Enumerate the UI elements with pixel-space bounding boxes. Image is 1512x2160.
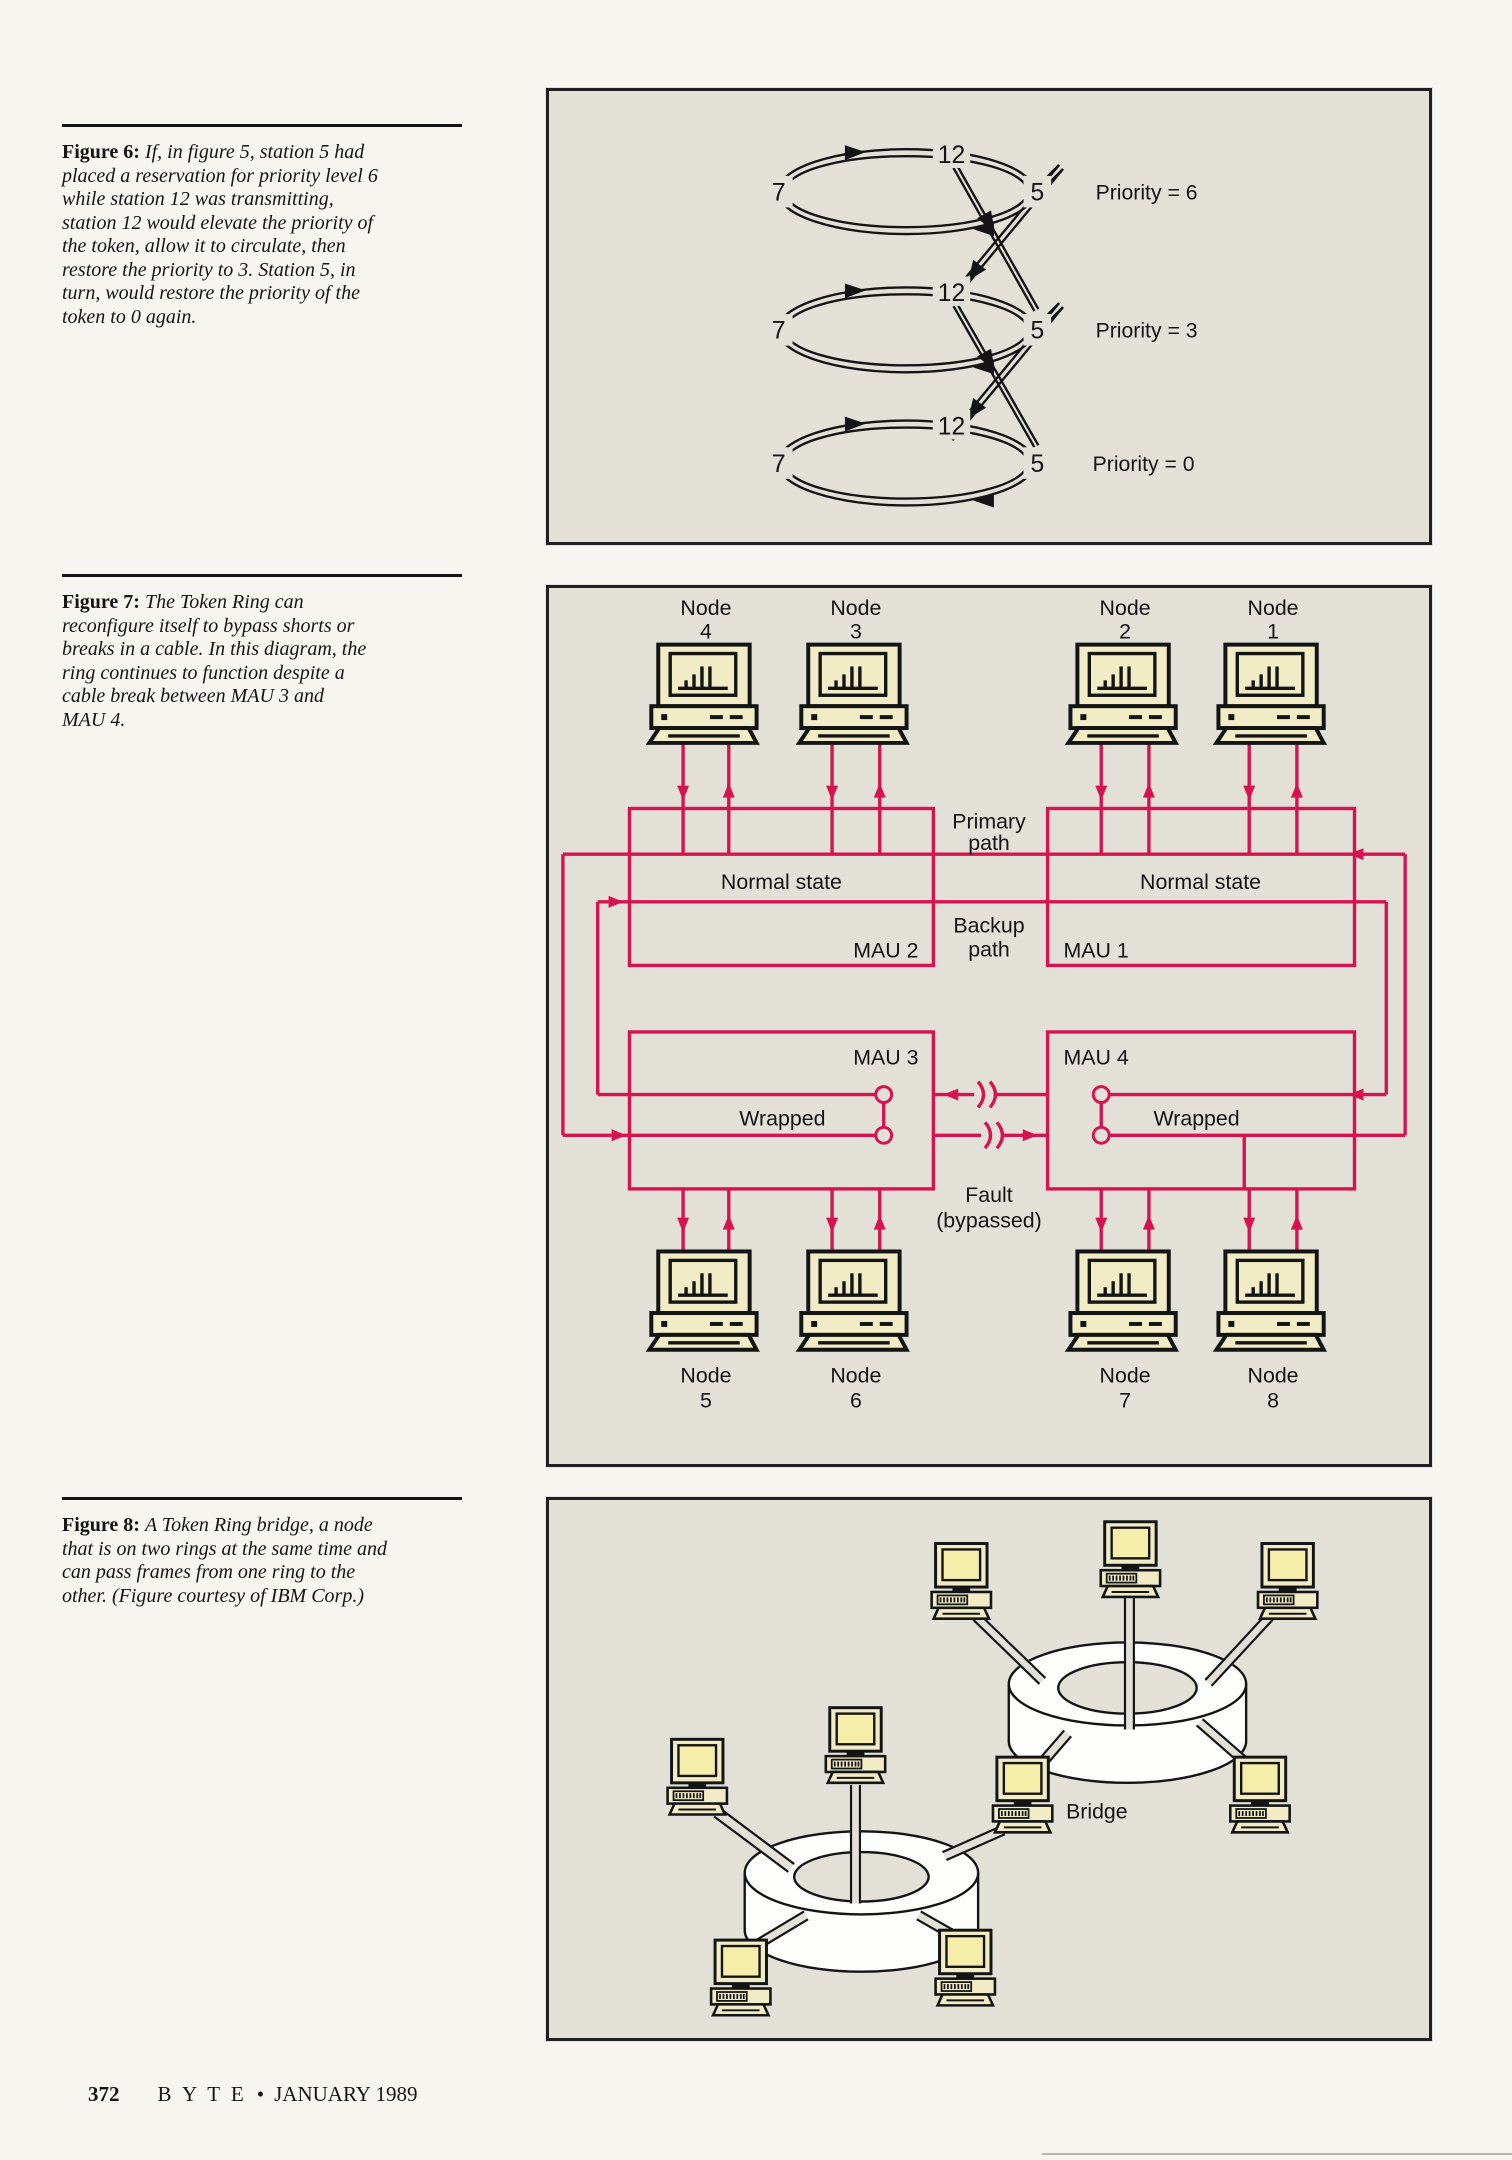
ring-bottom-computer <box>826 1708 885 1783</box>
node5-computer <box>649 1251 756 1349</box>
node8-computer <box>1216 1251 1323 1349</box>
svg-text:2: 2 <box>1119 620 1131 644</box>
flow-arrow-icon <box>973 493 994 508</box>
token-ring-priority6 <box>778 145 1035 236</box>
station-5: 5 <box>1030 451 1044 478</box>
figure6-caption: Figure 6: If, in figure 5, station 5 had… <box>62 124 484 329</box>
node7-computer <box>1068 1251 1175 1349</box>
figure7-caption-text: Figure 7: The Token Ring can reconfigure… <box>62 591 484 732</box>
node1-computer <box>1216 645 1323 743</box>
station-5: 5 <box>1030 318 1044 345</box>
node2-computer <box>1068 645 1175 743</box>
priority-label-0: Priority = 0 <box>1093 453 1195 476</box>
station-5: 5 <box>1030 180 1044 207</box>
svg-text:Node: Node <box>830 1364 881 1388</box>
station-12: 12 <box>938 142 965 169</box>
normal-state-label: Normal state <box>721 870 842 894</box>
bridge-label: Bridge <box>1066 1799 1127 1823</box>
svg-text:5: 5 <box>700 1388 712 1412</box>
figure8-caption-text: Figure 8: A Token Ring bridge, a node th… <box>62 1514 484 1608</box>
bypass-port-icon <box>1093 1087 1109 1103</box>
mau3-label: MAU 3 <box>853 1046 918 1070</box>
bridge-computer <box>993 1757 1052 1832</box>
node6-computer <box>799 1251 906 1349</box>
node3-computer <box>799 645 906 743</box>
flow-arrow-icon <box>968 260 986 281</box>
svg-text:(bypassed): (bypassed) <box>936 1209 1042 1233</box>
svg-text:1: 1 <box>1267 620 1279 644</box>
wrapped-label: Wrapped <box>1153 1106 1239 1130</box>
caption-rule <box>62 574 462 577</box>
priority-label-3: Priority = 3 <box>1096 320 1198 343</box>
token-ring-priority3 <box>778 283 1035 374</box>
wrapped-label: Wrapped <box>739 1106 825 1130</box>
svg-text:Node: Node <box>1248 596 1299 620</box>
node4-computer <box>649 645 756 743</box>
node-labels-top: Node 4 Node 3 Node 2 Node 1 <box>680 596 1298 644</box>
bypass-port-icon <box>876 1087 892 1103</box>
ring-bottom-computer <box>668 1739 727 1814</box>
token-ring-priority0 <box>778 417 1035 508</box>
figure7-caption: Figure 7: The Token Ring can reconfigure… <box>62 574 484 732</box>
figure7-panel: Node 4 Node 3 Node 2 Node 1 Node 5 Node … <box>546 585 1432 1467</box>
figure6-diagram: 7 12 5 7 12 5 7 12 5 Priority = 6 Priori… <box>549 91 1429 542</box>
page-number: 372 <box>88 2082 120 2107</box>
svg-text:8: 8 <box>1267 1388 1279 1412</box>
page-edge-line <box>1042 2153 1512 2155</box>
figure8-caption-label: Figure 8: <box>62 1514 140 1536</box>
backup-path-label: Backup <box>953 914 1024 938</box>
ring-bottom-computer <box>936 1930 995 2005</box>
fault-label: Fault <box>965 1183 1013 1207</box>
svg-text:6: 6 <box>850 1388 862 1412</box>
station-12: 12 <box>938 280 965 307</box>
station-7: 7 <box>772 318 786 345</box>
bypass-port-icon <box>1093 1127 1109 1143</box>
figure6-caption-text: Figure 6: If, in figure 5, station 5 had… <box>62 141 484 329</box>
svg-text:3: 3 <box>850 620 862 644</box>
svg-text:Node: Node <box>1100 596 1151 620</box>
svg-text:path: path <box>968 831 1010 855</box>
caption-rule <box>62 124 462 127</box>
svg-text:7: 7 <box>1119 1388 1131 1412</box>
station-7: 7 <box>772 180 786 207</box>
mau2-label: MAU 2 <box>853 938 918 962</box>
figure6-caption-label: Figure 6: <box>62 141 140 163</box>
mau1-label: MAU 1 <box>1063 938 1128 962</box>
figure8-caption: Figure 8: A Token Ring bridge, a node th… <box>62 1497 484 1608</box>
ring-top-computer <box>932 1544 991 1619</box>
ring-top-computer <box>1101 1522 1160 1597</box>
figure8-diagram: Bridge <box>549 1500 1429 2038</box>
figure6-panel: 7 12 5 7 12 5 7 12 5 Priority = 6 Priori… <box>546 88 1432 545</box>
page-footer: 372 B Y T E • JANUARY 1989 <box>88 2082 417 2107</box>
station-12: 12 <box>938 413 965 440</box>
node-labels-bottom: Node 5 Node 6 Node 7 Node 8 <box>680 1364 1298 1413</box>
svg-text:Node: Node <box>680 1364 731 1388</box>
footer-bullet: • <box>257 2082 264 2107</box>
ring-top-computer <box>1230 1757 1289 1832</box>
svg-text:Node: Node <box>1248 1364 1299 1388</box>
figure7-caption-label: Figure 7: <box>62 591 140 613</box>
svg-text:Node: Node <box>830 596 881 620</box>
priority-label-6: Priority = 6 <box>1096 182 1198 205</box>
figure8-panel: Bridge <box>546 1497 1432 2041</box>
normal-state-label: Normal state <box>1140 870 1261 894</box>
ring-bottom-computer <box>711 1940 770 2015</box>
magazine-name: B Y T E <box>158 2082 247 2107</box>
ring-top-computer <box>1258 1544 1317 1619</box>
mau4-label: MAU 4 <box>1063 1046 1128 1070</box>
svg-text:Node: Node <box>1100 1364 1151 1388</box>
flow-arrow-icon <box>968 398 986 419</box>
bypass-port-icon <box>876 1127 892 1143</box>
figure7-diagram: Node 4 Node 3 Node 2 Node 1 Node 5 Node … <box>549 588 1429 1464</box>
caption-rule <box>62 1497 462 1500</box>
magazine-page: Figure 6: If, in figure 5, station 5 had… <box>0 0 1512 2160</box>
issue-date: JANUARY 1989 <box>274 2082 417 2107</box>
svg-text:4: 4 <box>700 620 712 644</box>
svg-text:Node: Node <box>680 596 731 620</box>
svg-text:path: path <box>968 937 1010 961</box>
primary-path-label: Primary <box>952 809 1026 833</box>
station-7: 7 <box>772 451 786 478</box>
